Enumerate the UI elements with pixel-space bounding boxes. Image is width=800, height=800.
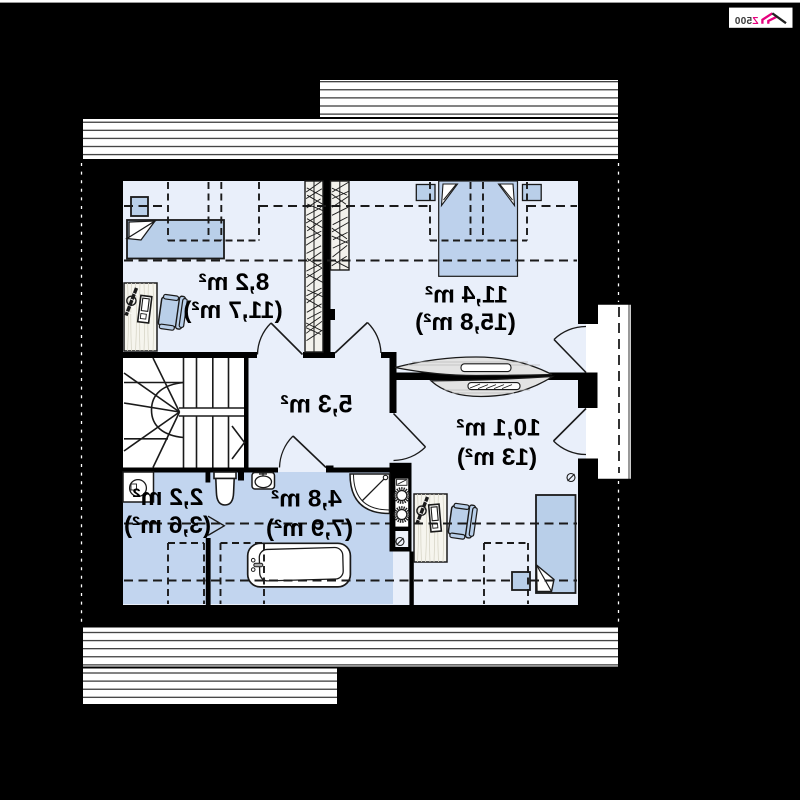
svg-text:Z500: Z500	[734, 16, 758, 27]
svg-text:8,2 m²: 8,2 m²	[199, 269, 270, 296]
svg-text:4,8 m²: 4,8 m²	[271, 486, 342, 513]
svg-text:5,3 m²: 5,3 m²	[280, 391, 352, 419]
svg-text:(13 m²): (13 m²)	[457, 444, 537, 471]
svg-text:11,4 m²: 11,4 m²	[425, 282, 508, 309]
svg-text:(3,6 m²): (3,6 m²)	[124, 512, 211, 539]
svg-text:2,2 m²: 2,2 m²	[133, 484, 204, 511]
svg-text:(15,8 m²): (15,8 m²)	[415, 309, 516, 336]
svg-text:(7,9 m²): (7,9 m²)	[266, 515, 353, 542]
svg-text:10,1 m²: 10,1 m²	[456, 415, 540, 442]
svg-text:(11,7 m²): (11,7 m²)	[183, 297, 282, 324]
